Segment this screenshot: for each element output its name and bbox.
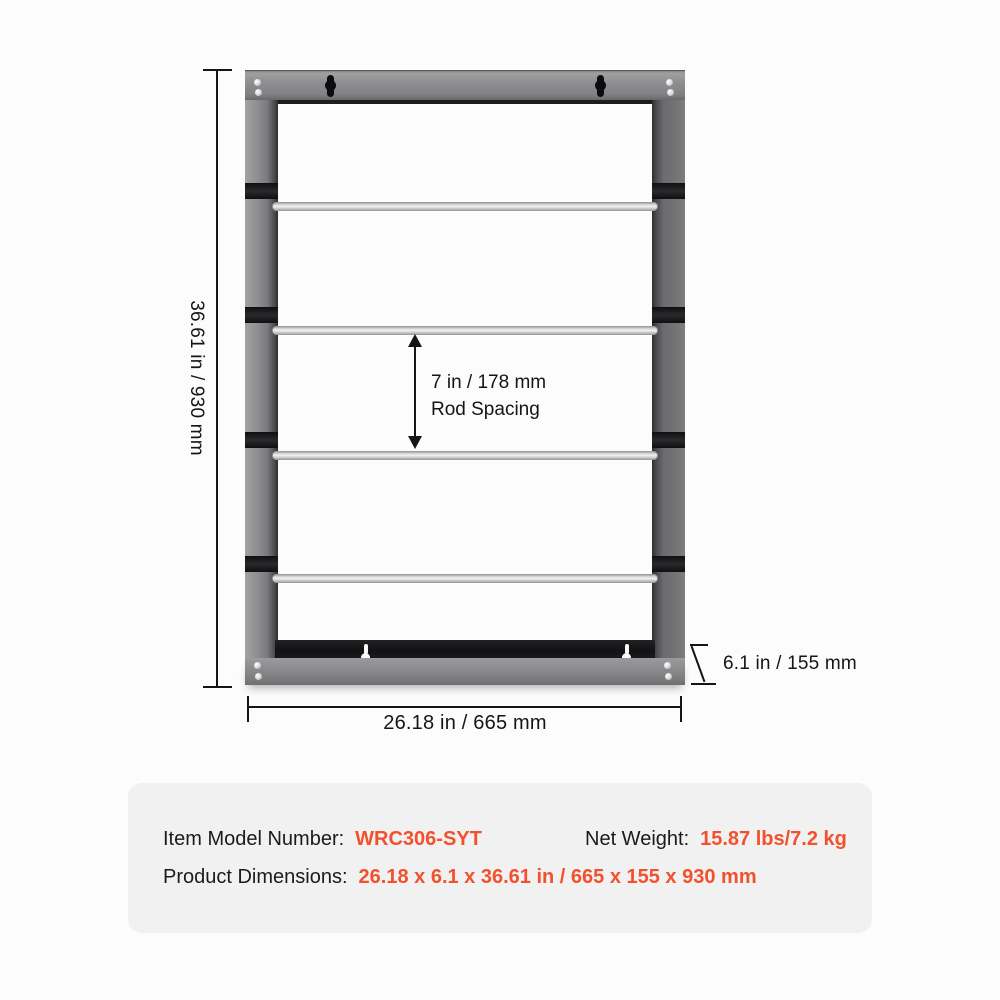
width-dimension-tick-right xyxy=(680,696,682,722)
product-dimensions-value: 26.18 x 6.1 x 36.61 in / 665 x 155 x 930… xyxy=(359,865,757,890)
rod-spacing-arrow-line xyxy=(414,346,416,438)
rod-bracket xyxy=(245,556,278,572)
keyhole-slot-icon xyxy=(324,75,336,97)
width-dimension-tick-left xyxy=(247,696,249,722)
depth-dimension-slant-line xyxy=(691,646,706,682)
rod-bracket xyxy=(245,307,278,323)
net-weight-value: 15.87 lbs/7.2 kg xyxy=(700,827,847,852)
rivet-icon xyxy=(255,89,262,96)
width-dimension-label: 26.18 in / 665 mm xyxy=(315,712,615,735)
depth-dimension-tick-bottom xyxy=(691,683,716,685)
hanging-rod xyxy=(272,202,658,211)
hanging-rod xyxy=(272,451,658,460)
info-panel: Item Model Number: WRC306-SYT Net Weight… xyxy=(128,783,872,933)
rod-spacing-value: 7 in / 178 mm xyxy=(431,369,546,396)
keyhole-slot-icon xyxy=(594,75,606,97)
rod-bracket xyxy=(652,307,685,323)
hanging-rod xyxy=(272,326,658,335)
hanging-rod xyxy=(272,574,658,583)
rivet-icon xyxy=(664,662,671,669)
rod-spacing-arrowhead-down xyxy=(408,436,422,449)
rod-spacing-caption: Rod Spacing xyxy=(431,396,546,423)
rod-bracket xyxy=(245,432,278,448)
bottom-back-rail xyxy=(275,640,655,658)
rod-bracket xyxy=(652,183,685,199)
top-mounting-bar xyxy=(245,70,685,100)
keyhole-hole xyxy=(325,80,336,91)
model-number-row: Item Model Number: WRC306-SYT xyxy=(163,827,482,852)
rivet-icon xyxy=(666,79,673,86)
rod-bracket xyxy=(245,183,278,199)
net-weight-row: Net Weight: 15.87 lbs/7.2 kg xyxy=(585,827,847,852)
net-weight-label: Net Weight: xyxy=(585,827,689,852)
height-dimension-tick-bottom xyxy=(203,686,232,688)
model-number-value: WRC306-SYT xyxy=(355,827,482,852)
rivet-icon xyxy=(254,662,261,669)
rod-bracket xyxy=(652,556,685,572)
product-dimensions-label: Product Dimensions: xyxy=(163,865,348,890)
height-dimension-tick-top xyxy=(203,69,232,71)
keyhole-hole xyxy=(595,80,606,91)
rod-bracket xyxy=(652,432,685,448)
height-dimension-line xyxy=(216,70,218,687)
rivet-icon xyxy=(667,89,674,96)
width-dimension-line xyxy=(248,706,682,708)
inner-top-rail xyxy=(275,100,655,104)
bottom-mounting-bar xyxy=(245,658,685,685)
rivet-icon xyxy=(254,79,261,86)
product-dimensions-row: Product Dimensions: 26.18 x 6.1 x 36.61 … xyxy=(163,865,757,890)
height-dimension-label: 36.61 in / 930 mm xyxy=(185,300,207,455)
rod-spacing-label: 7 in / 178 mm Rod Spacing xyxy=(431,369,546,423)
rivet-icon xyxy=(255,673,262,680)
depth-dimension-label: 6.1 in / 155 mm xyxy=(723,653,857,675)
product-dimensions-diagram: 36.61 in / 930 mm 26.18 in / 665 mm 6.1 … xyxy=(0,0,1000,1000)
rivet-icon xyxy=(665,673,672,680)
model-number-label: Item Model Number: xyxy=(163,827,344,852)
